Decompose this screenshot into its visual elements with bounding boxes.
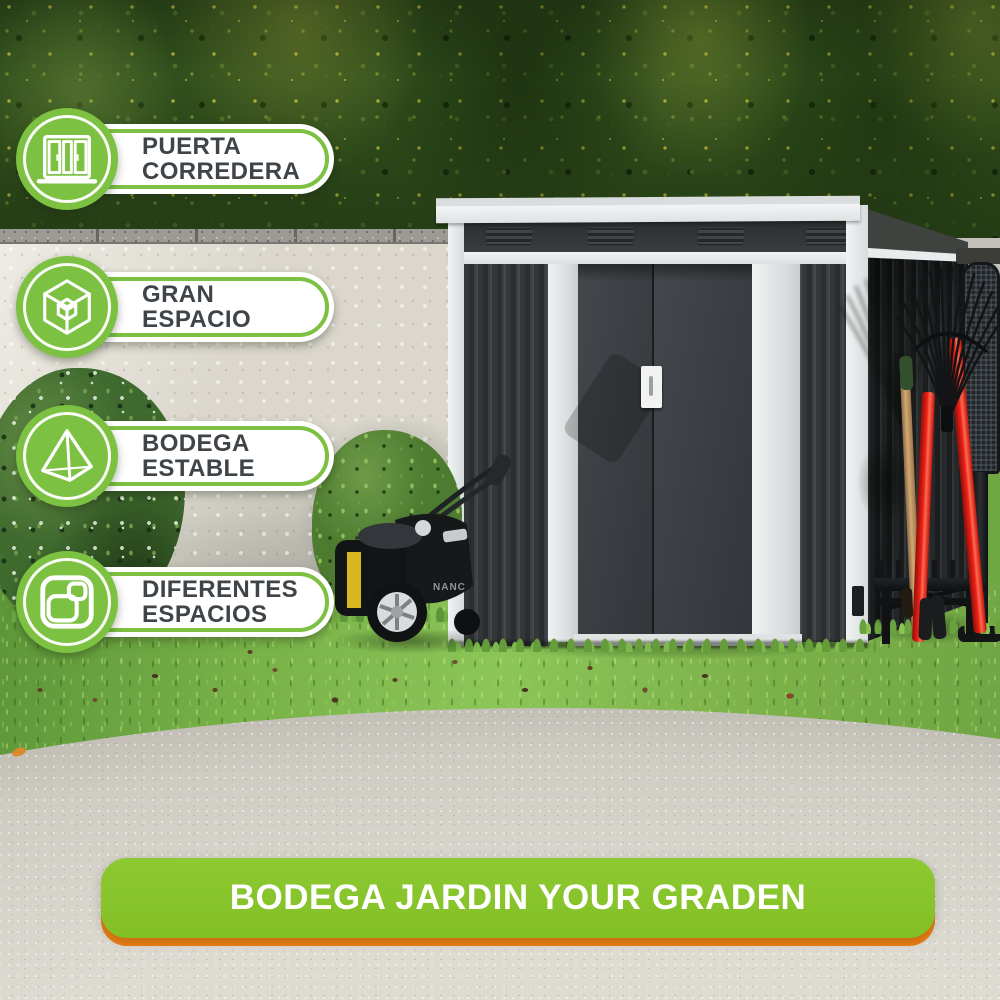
door-top-shadow bbox=[578, 264, 752, 282]
feature-badge-bodega-estable: BODEGA ESTABLE bbox=[0, 396, 360, 516]
product-title-banner: BODEGA JARDIN YOUR GRADEN bbox=[101, 858, 935, 938]
feature-label-line1: DIFERENTES bbox=[142, 577, 332, 602]
shed-door-right bbox=[652, 264, 752, 636]
cube-icon bbox=[36, 276, 98, 338]
shed-vent bbox=[697, 227, 744, 244]
feature-badge-diferentes-espacios: DIFERENTES ESPACIOS bbox=[0, 542, 360, 662]
feature-label-line2: CORREDERA bbox=[142, 159, 332, 184]
garden-wall-coping bbox=[0, 229, 452, 244]
feature-label-line1: PUERTA bbox=[142, 134, 332, 159]
feature-icon-circle bbox=[16, 108, 118, 210]
feature-label-line2: ESPACIOS bbox=[142, 602, 332, 627]
shed-door-handle bbox=[641, 366, 662, 408]
mower-brand-label: NANC bbox=[433, 582, 466, 593]
shed-roof-slope bbox=[852, 200, 968, 262]
gravel-patio bbox=[0, 708, 1000, 1000]
feature-label-line1: GRAN bbox=[142, 282, 332, 307]
feature-icon-circle bbox=[16, 551, 118, 653]
shed-vent bbox=[587, 227, 634, 244]
product-title: BODEGA JARDIN YOUR GRADEN bbox=[101, 858, 935, 938]
feature-icon-circle bbox=[16, 256, 118, 358]
wooden-tool-wrap bbox=[901, 588, 913, 618]
feature-icon-circle bbox=[16, 405, 118, 507]
feature-badge-gran-espacio: GRAN ESPACIO bbox=[0, 247, 360, 367]
feature-label-line1: BODEGA bbox=[142, 431, 332, 456]
pyramid-icon bbox=[36, 425, 98, 487]
sliding-door-icon bbox=[36, 128, 98, 190]
tool-stand-leg bbox=[882, 588, 890, 644]
spaces-icon bbox=[36, 571, 98, 633]
shed-door-frame-right bbox=[752, 264, 800, 640]
shed-door-frame-left bbox=[548, 264, 578, 642]
shed-vent bbox=[485, 227, 532, 244]
feature-label-line2: ESTABLE bbox=[142, 456, 332, 481]
feature-badge-puerta-corredera: PUERTA CORREDERA bbox=[0, 99, 360, 219]
feature-label-line2: ESPACIO bbox=[142, 307, 332, 332]
leaf-rake bbox=[895, 258, 1000, 448]
product-image: NANC PUERTA CORREDERA bbox=[0, 0, 1000, 1000]
